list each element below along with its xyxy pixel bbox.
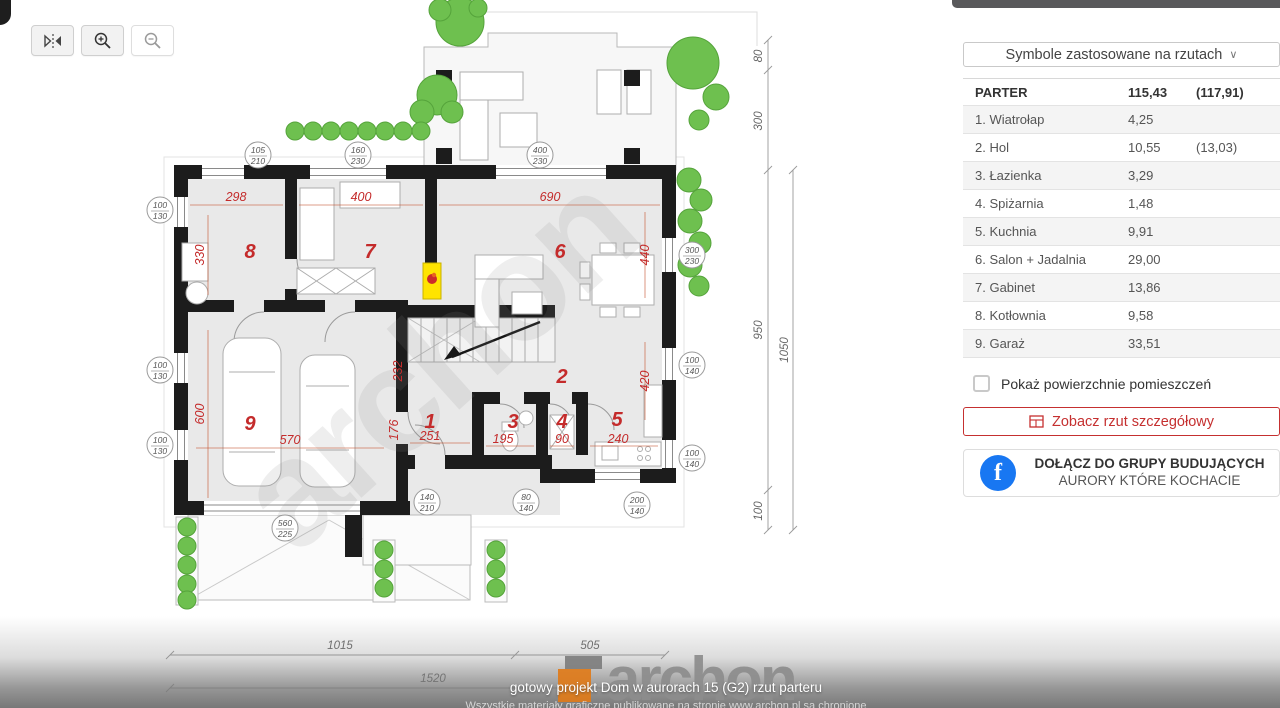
floor-area: 115,43 (1128, 85, 1196, 100)
svg-text:1015: 1015 (327, 640, 353, 652)
svg-text:210: 210 (419, 503, 434, 513)
room-label: 3. Łazienka (963, 168, 1128, 183)
svg-text:100: 100 (153, 200, 167, 210)
svg-text:140: 140 (685, 366, 699, 376)
svg-text:440: 440 (638, 245, 652, 266)
zoom-in-icon (93, 31, 113, 51)
svg-text:5: 5 (611, 409, 623, 431)
svg-text:600: 600 (193, 404, 207, 425)
svg-text:140: 140 (630, 506, 644, 516)
svg-text:300: 300 (685, 245, 699, 255)
svg-text:950: 950 (753, 320, 765, 340)
room-area: 1,48 (1128, 196, 1196, 211)
svg-text:690: 690 (540, 190, 561, 204)
room-area: 4,25 (1128, 112, 1196, 127)
room-area: 33,51 (1128, 336, 1196, 351)
table-row[interactable]: 6. Salon + Jadalnia 29,00 (963, 246, 1280, 274)
table-row[interactable]: 9. Garaż 33,51 (963, 330, 1280, 358)
svg-text:560: 560 (278, 518, 292, 528)
facebook-group-button[interactable]: f DOŁĄCZ DO GRUPY BUDUJĄCYCH AURORY KTÓR… (963, 449, 1280, 497)
svg-text:230: 230 (684, 256, 699, 266)
facebook-line2: AURORY KTÓRE KOCHACIE (1030, 473, 1269, 490)
svg-text:160: 160 (351, 145, 365, 155)
svg-text:300: 300 (753, 111, 765, 131)
svg-text:140: 140 (420, 492, 434, 502)
svg-text:176: 176 (387, 420, 401, 441)
facebook-line1: DOŁĄCZ DO GRUPY BUDUJĄCYCH (1030, 456, 1269, 473)
svg-text:100: 100 (685, 355, 699, 365)
room-label: 7. Gabinet (963, 280, 1128, 295)
window-corner (0, 0, 11, 25)
svg-text:105: 105 (251, 145, 265, 155)
zoom-in-button[interactable] (81, 25, 124, 56)
detail-plan-button-label: Zobacz rzut szczegółowy (1052, 414, 1214, 430)
svg-text:140: 140 (519, 503, 533, 513)
room-area: 3,29 (1128, 168, 1196, 183)
room-area: 29,00 (1128, 252, 1196, 267)
svg-text:330: 330 (193, 245, 207, 266)
svg-text:100: 100 (153, 360, 167, 370)
svg-text:230: 230 (532, 156, 547, 166)
room-area: 13,86 (1128, 280, 1196, 295)
floor-area-alt: (117,91) (1196, 85, 1280, 100)
table-row[interactable]: 8. Kotłownia 9,58 (963, 302, 1280, 330)
dimension-lines-right: 80 300 950 100 1050 (753, 36, 797, 534)
table-row[interactable]: 3. Łazienka 3,29 (963, 162, 1280, 190)
svg-text:80: 80 (521, 492, 531, 502)
svg-text:80: 80 (753, 49, 765, 62)
svg-text:400: 400 (351, 190, 372, 204)
svg-text:400: 400 (533, 145, 547, 155)
room-label: 4. Spiżarnia (963, 196, 1128, 211)
svg-text:195: 195 (493, 432, 514, 446)
svg-text:1050: 1050 (779, 337, 791, 363)
floor-plan-drawing: archon 8 7 6 9 1 2 3 4 5 298 400 690 330… (140, 0, 820, 708)
svg-text:130: 130 (153, 371, 167, 381)
room-area: 9,58 (1128, 308, 1196, 323)
room-areas-table: PARTER 115,43 (117,91) 1. Wiatrołap 4,25… (963, 78, 1280, 358)
symbols-dropdown-label: Symbole zastosowane na rzutach (1006, 47, 1223, 63)
table-row[interactable]: 1. Wiatrołap 4,25 (963, 106, 1280, 134)
svg-text:505: 505 (580, 640, 600, 652)
svg-text:140: 140 (685, 459, 699, 469)
room-label: 2. Hol (963, 140, 1128, 155)
floor-header-row: PARTER 115,43 (117,91) (963, 79, 1280, 106)
svg-text:6: 6 (554, 241, 566, 263)
room-label: 5. Kuchnia (963, 224, 1128, 239)
svg-text:100: 100 (153, 435, 167, 445)
show-areas-checkbox[interactable] (973, 375, 990, 392)
flip-horizontal-button[interactable] (31, 25, 74, 56)
show-areas-checkbox-row[interactable]: Pokaż powierzchnie pomieszczeń (973, 375, 1280, 392)
svg-text:232: 232 (391, 361, 405, 383)
floor-plan-canvas[interactable]: archon 8 7 6 9 1 2 3 4 5 298 400 690 330… (140, 0, 820, 708)
top-bar-fragment (952, 0, 1280, 8)
svg-text:100: 100 (753, 501, 765, 521)
room-label: 9. Garaż (963, 336, 1128, 351)
svg-text:298: 298 (225, 190, 247, 204)
svg-text:130: 130 (153, 211, 167, 221)
detail-plan-button[interactable]: Zobacz rzut szczegółowy (963, 407, 1280, 436)
table-row[interactable]: 4. Spiżarnia 1,48 (963, 190, 1280, 218)
svg-text:251: 251 (419, 429, 441, 443)
svg-text:7: 7 (364, 241, 376, 263)
svg-text:225: 225 (277, 529, 292, 539)
svg-text:130: 130 (153, 446, 167, 456)
flip-horizontal-icon (42, 33, 64, 49)
svg-text:4: 4 (555, 411, 567, 433)
facebook-icon: f (980, 455, 1016, 491)
room-area: 10,55 (1128, 140, 1196, 155)
svg-text:230: 230 (350, 156, 365, 166)
room-label: 6. Salon + Jadalnia (963, 252, 1128, 267)
plan-sidebar: Symbole zastosowane na rzutach ∨ PARTER … (963, 42, 1280, 497)
table-row[interactable]: 2. Hol 10,55 (13,03) (963, 134, 1280, 162)
svg-text:100: 100 (685, 448, 699, 458)
svg-text:570: 570 (280, 433, 301, 447)
dimension-lines-bottom: 1015 505 1520 (166, 640, 669, 692)
room-label: 1. Wiatrołap (963, 112, 1128, 127)
table-row[interactable]: 5. Kuchnia 9,91 (963, 218, 1280, 246)
svg-text:1520: 1520 (420, 673, 446, 685)
room-label: 8. Kotłownia (963, 308, 1128, 323)
room-area-alt: (13,03) (1196, 140, 1280, 155)
svg-text:2: 2 (555, 366, 567, 388)
symbols-dropdown[interactable]: Symbole zastosowane na rzutach ∨ (963, 42, 1280, 67)
floor-label: PARTER (963, 85, 1128, 100)
floor-plan-icon (1029, 415, 1044, 428)
svg-text:9: 9 (244, 413, 256, 435)
room-area: 9,91 (1128, 224, 1196, 239)
svg-text:90: 90 (555, 432, 569, 446)
chevron-down-icon: ∨ (1229, 48, 1237, 61)
table-row[interactable]: 7. Gabinet 13,86 (963, 274, 1280, 302)
svg-text:8: 8 (244, 241, 256, 263)
svg-text:200: 200 (629, 495, 644, 505)
svg-text:240: 240 (607, 432, 629, 446)
svg-text:3: 3 (507, 411, 518, 433)
svg-text:210: 210 (250, 156, 265, 166)
show-areas-label: Pokaż powierzchnie pomieszczeń (1001, 376, 1211, 392)
svg-text:420: 420 (638, 371, 652, 392)
